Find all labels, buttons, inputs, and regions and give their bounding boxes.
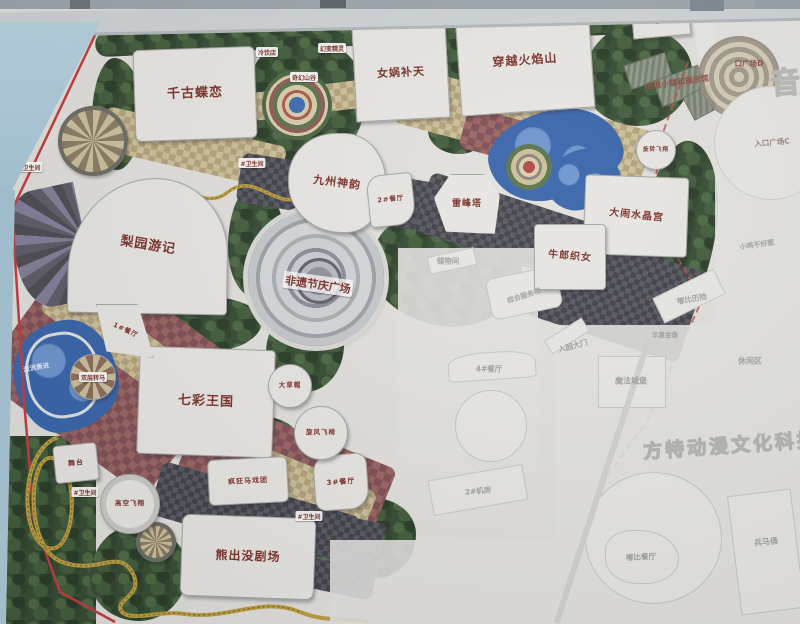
label-fengkuang-maxituan: 疯狂马戏团 [228,476,268,486]
label-dacaomao: 大草帽 [279,382,302,389]
northwest-radial-plaza [58,106,128,176]
label-weishengjian-stage: #卫生间 [71,487,98,497]
faded-area-bottom [330,540,560,624]
label-canting-2: 2#餐厅 [377,195,405,205]
building-xiongchumo-juchang: 熊出没剧场 [180,514,317,601]
label-qiangu-dielian: 千古蝶恋 [167,86,224,103]
ride-shuangceng-zhuanma: 双层转马 [70,354,116,400]
label-weishengjian-top: #卫生间 [238,158,265,168]
label-dubi-canting: 嘟比餐厅 [626,551,657,564]
park-map-photo: 千古蝶恋 女娲补天 穿越火焰山 总仓 九州神韵 2#餐厅 雷峰塔 大闹水晶宫 牛… [0,0,800,624]
label-rukou-d: 口广场D [733,57,766,69]
label-shuangceng-zhuanma: 双层转马 [79,372,107,382]
label-xuanzhuan-feixiang: 旋转飞翔 [643,147,669,153]
label-huaxia-jinxiang: 华夏金像 [652,329,678,339]
lake-island-plaza [506,144,552,190]
label-weishengjian-south: #卫生间 [295,511,322,521]
label-leifengta: 雷峰塔 [452,199,482,209]
label-jiuzhou-shenyun: 九州神韵 [312,174,361,192]
label-xiongchumo-juchang: 熊出没剧场 [215,549,280,565]
frame-bracket [690,0,724,11]
label-qihuan-shangu: 奇幻山谷 [290,72,318,82]
faint-outline [455,390,527,462]
label-chuanyue-huoyanshan: 穿越火焰山 [492,52,558,70]
building-qicai-wangguo: 七彩王国 [136,346,276,459]
label-mofa-chengbao: 魔法城堡 [615,376,647,387]
building-liyuan-youji: 梨园游记 [67,177,229,316]
watermark-side-char: 音 [769,57,800,103]
building-canting-2: 2#餐厅 [365,172,416,229]
label-liyuan-youji: 梨园游记 [119,234,177,258]
ride-gaokong-feixiang: 高空飞翔 [100,474,160,534]
building-fengkuang-maxituan: 疯狂马戏团 [207,456,289,506]
label-canting-4: 4#餐厅 [476,364,503,375]
ride-xuanzhuan-feixiang: 旋转飞翔 [636,130,676,170]
label-canting-1: 1#餐厅 [111,322,139,340]
building-wutai: 舞台 [52,442,100,484]
label-danao-shuijinggong: 大闹水晶宫 [608,207,664,224]
label-xiuxianqu: 休闲区 [738,356,762,367]
frame-bracket [70,0,90,9]
building-canting-3: 3#餐厅 [312,452,370,512]
label-niulang-zhinv: 牛郎织女 [548,249,593,264]
board-frame-rail [0,0,800,9]
label-nvwa-butian: 女娲补天 [377,65,426,80]
ride-xuanfeng-feiyi: 旋风飞椅 [294,406,348,460]
building-qiangu-dielian: 千古蝶恋 [132,46,257,142]
label-chuwujian: 储物间 [437,256,460,267]
label-wutai: 舞台 [68,458,85,468]
building-niulang-zhinv: 牛郎织女 [534,224,606,290]
ride-dacaomao: 大草帽 [268,364,312,408]
label-canting-3: 3#餐厅 [326,477,355,487]
frame-bracket [755,0,800,9]
label-huanbian-jingling: 幻变精灵 [318,43,346,53]
label-qicai-wangguo: 七彩王国 [178,394,235,411]
frame-bracket [320,0,346,8]
building-nvwa-butian: 女娲补天 [352,24,451,123]
label-xuanfeng-feiyi: 旋风飞椅 [306,429,336,436]
label-lengyindian: 冷饮店 [256,47,278,57]
label-gaokong-feixiang: 高空飞翔 [115,500,145,507]
